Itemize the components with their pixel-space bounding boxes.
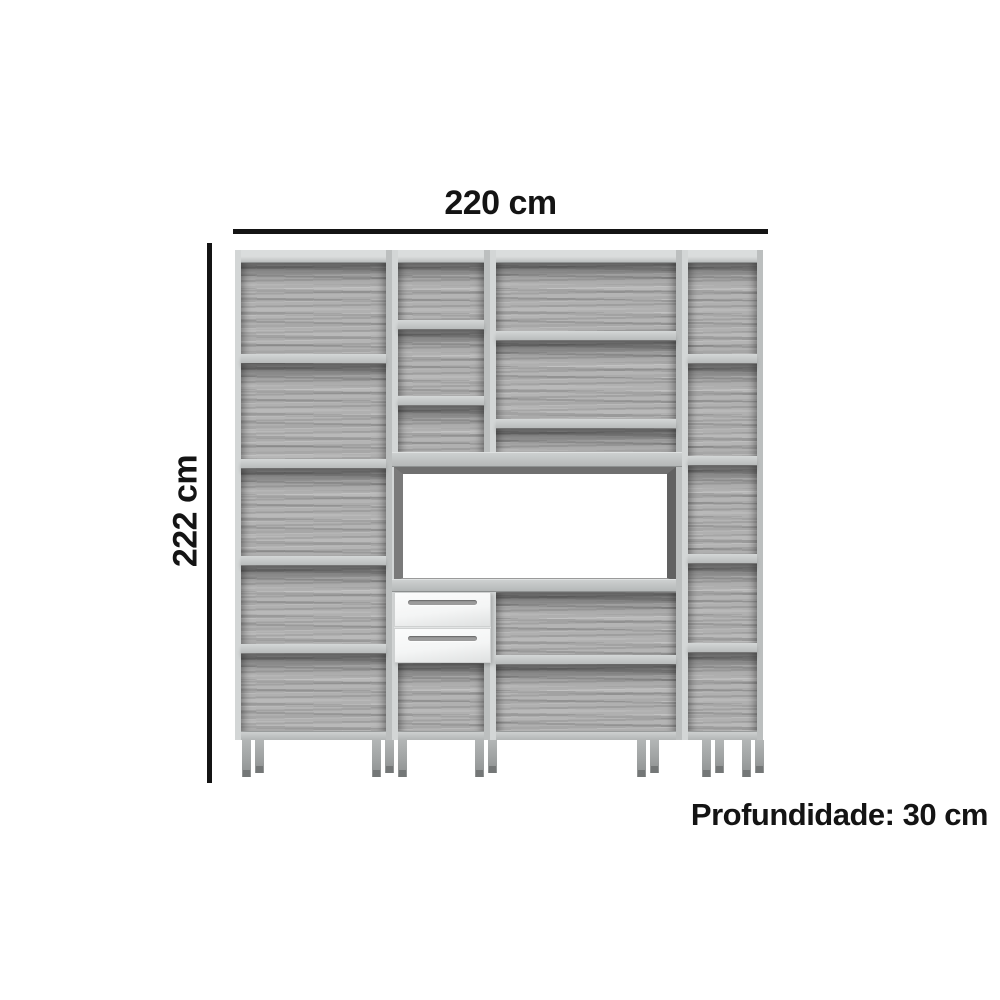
shelf-compartment: [496, 340, 676, 420]
width-dimension-label: 220 cm: [233, 184, 768, 223]
top-board: [241, 250, 386, 263]
upper-cabinet-bottom-board: [392, 452, 682, 467]
drawer-handle: [408, 600, 477, 605]
shelf-compartment: [241, 262, 386, 355]
shelf-compartment: [398, 262, 484, 321]
shelf-compartment: [241, 468, 386, 557]
cabinet-leg: [488, 740, 497, 773]
shelf-compartment: [688, 465, 757, 555]
top-board: [398, 250, 484, 263]
counter-board: [392, 579, 676, 592]
product-dimension-diagram: 220 cm 222 cm Profundidade: 30 cm: [0, 0, 1000, 1000]
bottom-board: [241, 731, 386, 740]
drawer-top: [394, 592, 491, 627]
shelf-compartment: [496, 262, 676, 332]
stove-niche-opening: [394, 467, 676, 581]
shelf-compartment: [496, 428, 676, 453]
cabinet-leg: [255, 740, 264, 773]
shelf-compartment: [496, 664, 676, 733]
shelf-compartment: [398, 405, 484, 453]
cabinet-leg: [475, 740, 484, 777]
shelf-compartment: [241, 653, 386, 733]
cabinet-module-left: [235, 250, 392, 740]
open-compartment-under-drawers: [398, 663, 484, 733]
height-dimension-line: [207, 243, 212, 783]
shelf-compartment: [688, 563, 757, 644]
shelf-compartment: [688, 652, 757, 733]
shelf-compartment: [241, 363, 386, 460]
top-board: [688, 250, 757, 263]
cabinet-leg: [755, 740, 764, 773]
bottom-board: [496, 731, 676, 740]
bottom-board: [398, 731, 484, 740]
top-board: [496, 250, 676, 263]
shelf-compartment: [241, 565, 386, 645]
cabinet-leg: [715, 740, 724, 773]
drawer-unit: [394, 592, 491, 663]
cabinet-leg: [637, 740, 646, 777]
width-dimension-line: [233, 229, 768, 234]
shelf-compartment: [398, 329, 484, 397]
kitchen-cabinet-set: [235, 250, 763, 740]
cabinet-leg: [398, 740, 407, 777]
cabinet-leg: [372, 740, 381, 777]
shelf-compartment: [688, 363, 757, 457]
cabinet-leg: [742, 740, 751, 777]
depth-dimension-label: Profundidade: 30 cm: [691, 797, 988, 833]
shelf-compartment: [688, 262, 757, 355]
drawer-handle: [408, 636, 477, 641]
shelf-compartment: [496, 592, 676, 656]
height-dimension-label: 222 cm: [167, 455, 206, 567]
cabinet-module-right: [682, 250, 763, 740]
cabinet-leg: [385, 740, 394, 773]
bottom-board: [688, 731, 757, 740]
cabinet-leg: [702, 740, 711, 777]
cabinet-leg: [242, 740, 251, 777]
drawer-bottom: [394, 628, 491, 663]
cabinet-leg: [650, 740, 659, 773]
